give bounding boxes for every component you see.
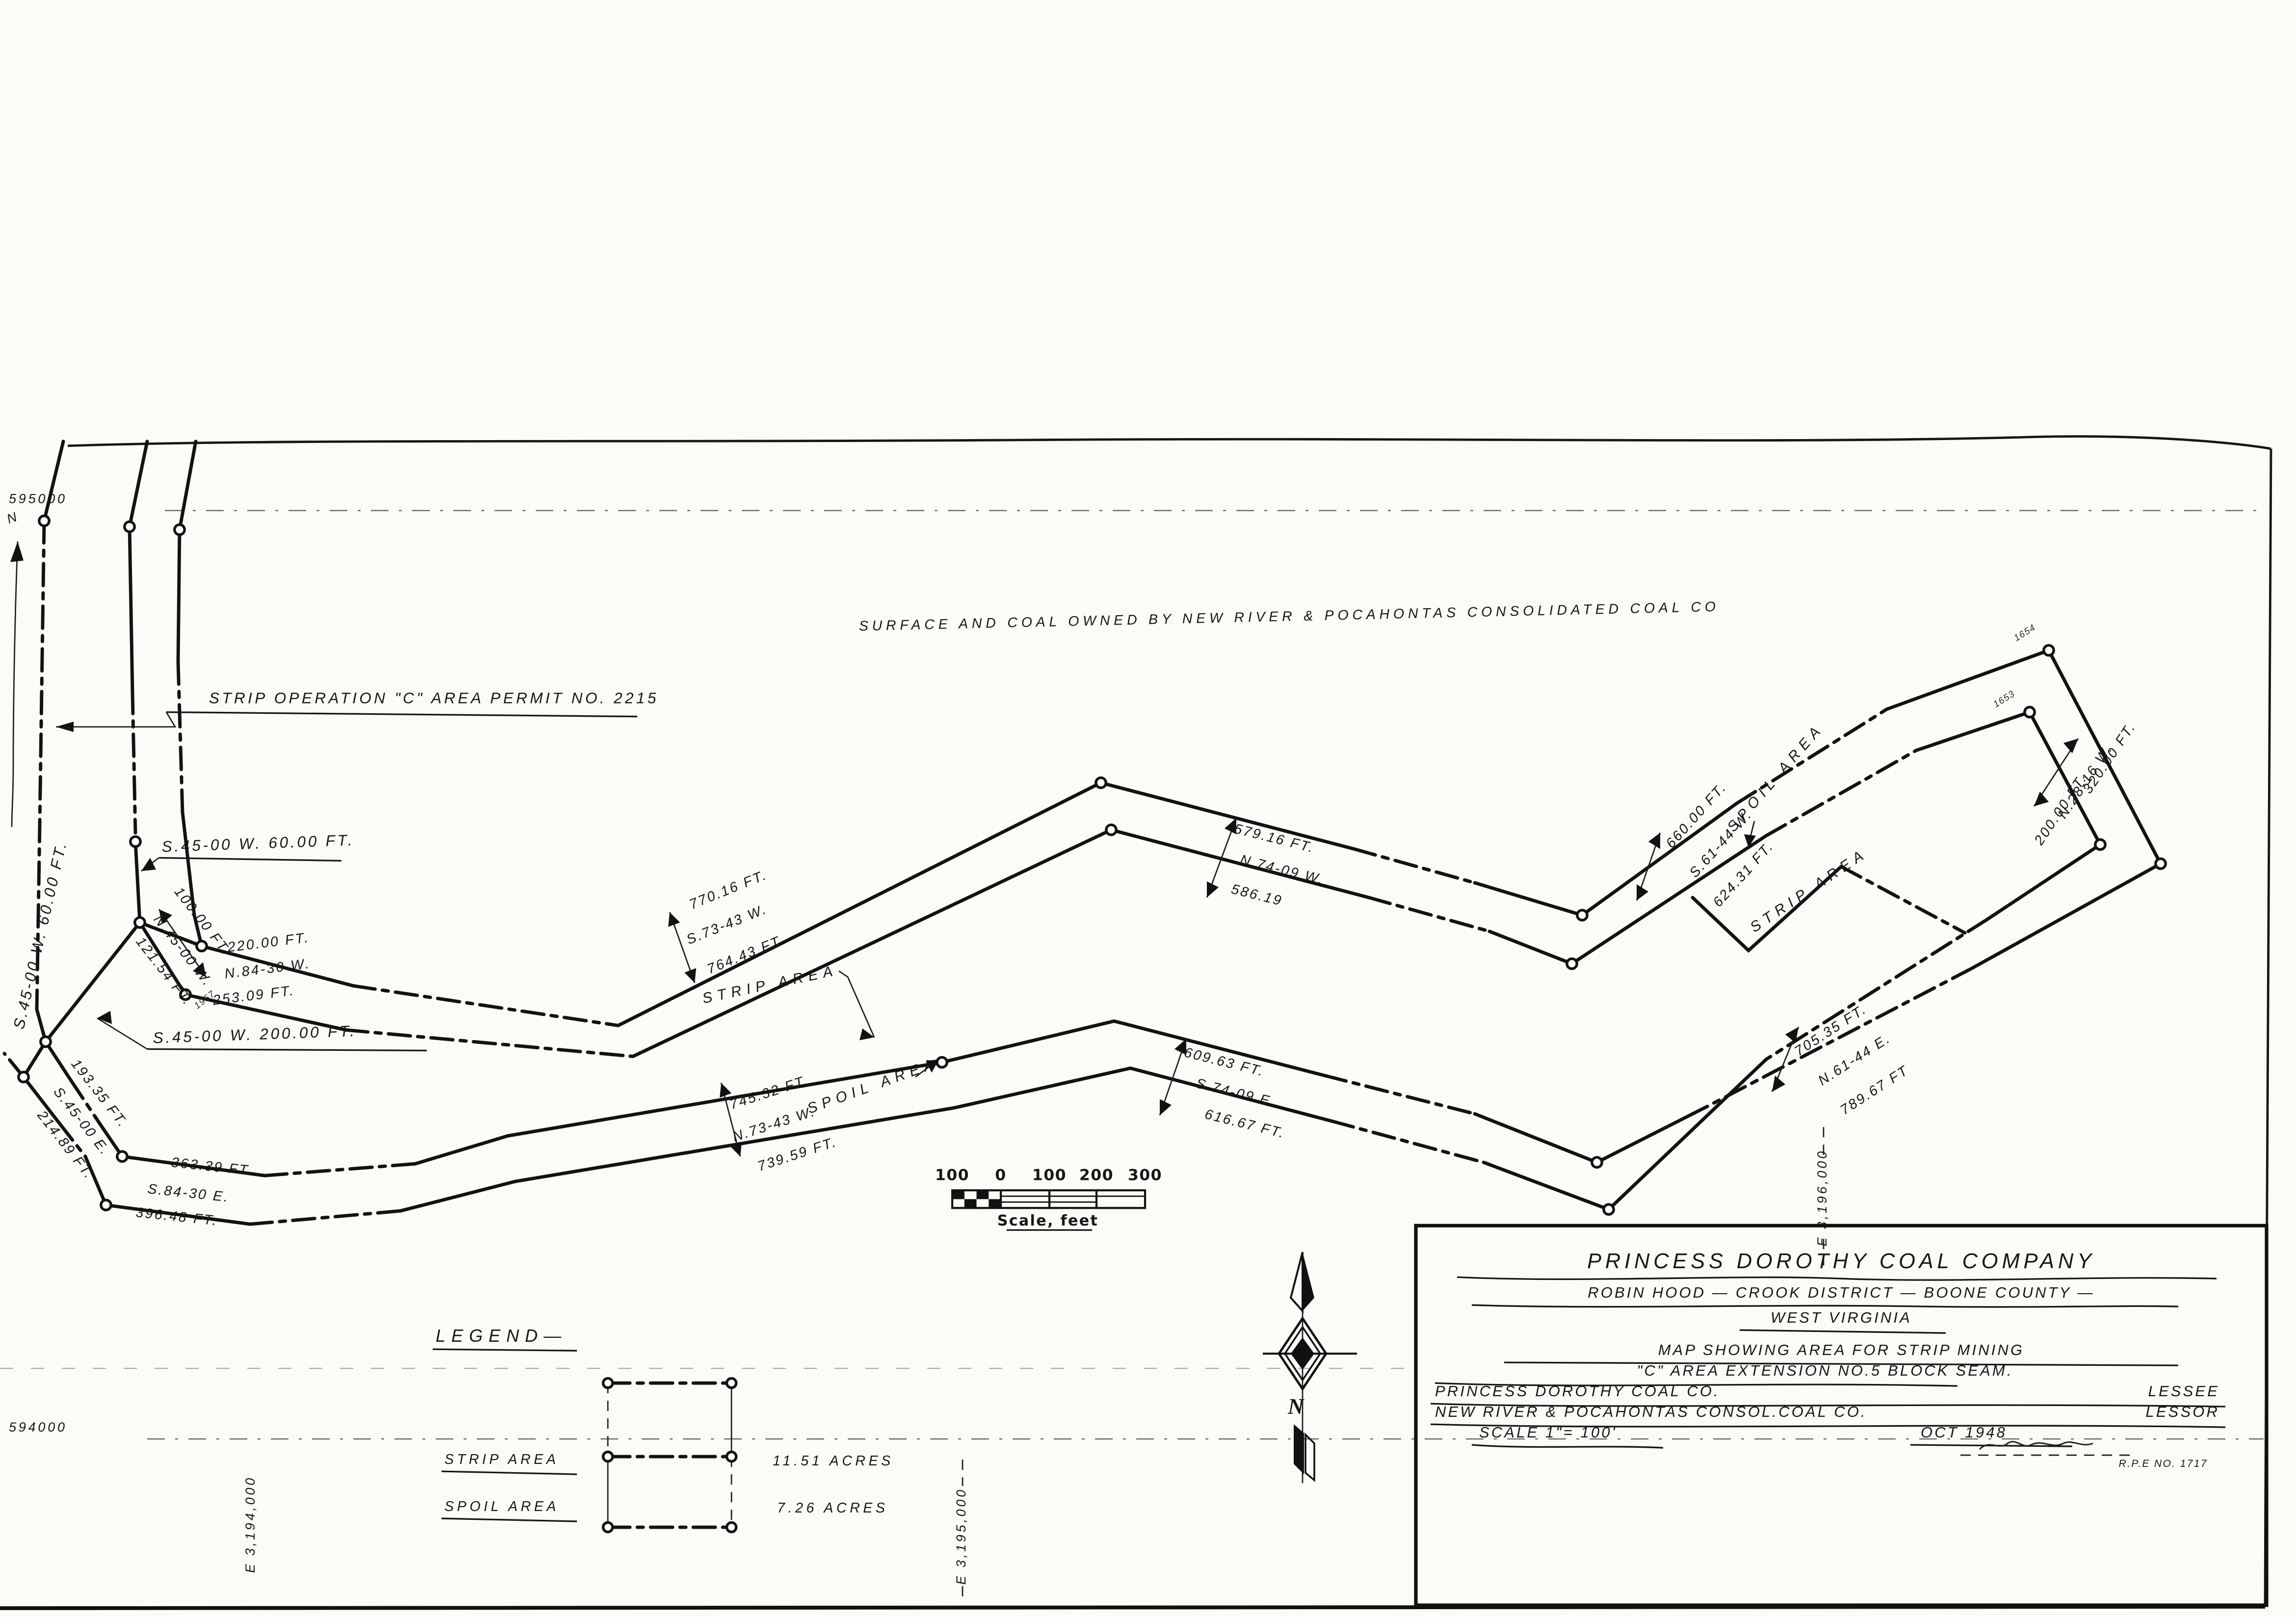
station-numbers: 1654 1653 1957 (192, 623, 2037, 1012)
title-lessee-name: PRINCESS DOROTHY COAL CO. (1435, 1382, 1720, 1400)
south1-193 (46, 1042, 71, 1080)
scale-bar: 100 0 100 200 300 Scale, feet (935, 1166, 1162, 1230)
north2-764 (633, 830, 1111, 1056)
legend-title: LEGEND— (436, 1326, 567, 1346)
grid-label-e3196000: E 3,196,000 (1815, 1149, 1829, 1246)
scale-caption: Scale, feet (997, 1212, 1099, 1229)
dist-label: 764.43 FT. (705, 932, 787, 977)
bearing-label: N.84-30 W. (224, 956, 312, 982)
title-scale: SCALE 1"= 100' (1479, 1424, 1617, 1441)
area-labels: STRIP AREA SPOIL AREA SPOIL AREA STRIP A… (701, 720, 1871, 1117)
north1-660 (1887, 651, 2049, 709)
title-lessor-name: NEW RIVER & POCAHONTAS CONSOL.COAL CO. (1435, 1403, 1867, 1420)
traverse-descent-b (130, 442, 147, 692)
legend-strip-acres: 11.51 ACRES (773, 1453, 894, 1469)
grid-label-594000: 594000 (9, 1420, 67, 1434)
grid-label-e3195000: E 3,195,000 (954, 1487, 968, 1585)
north-letter-small: N (5, 509, 19, 526)
title-subject1: MAP SHOWING AREA FOR STRIP MINING (1658, 1341, 2025, 1358)
station-label: 1653 (1992, 689, 2017, 710)
north-arrow-small: N (5, 509, 24, 827)
dist-label: 363.39 FT. (170, 1154, 254, 1178)
title-lessee-role: LESSEE (2148, 1382, 2219, 1400)
bearing-label: N.74-09 W. (1238, 852, 1326, 888)
north2-624 (1916, 712, 2030, 751)
legend-spoil-label: SPOIL AREA (444, 1499, 559, 1514)
title-lessor-role: LESSOR (2146, 1403, 2219, 1420)
traverse-descent-a (44, 442, 63, 521)
bearing-label: S.45-00 W. 60.00 FT. (161, 831, 355, 856)
dist-label: 616.67 FT. (1203, 1106, 1287, 1142)
title-block: PRINCESS DOROTHY COAL COMPANY ROBIN HOOD… (1416, 1226, 2267, 1605)
north2-586 (1489, 931, 1572, 964)
seg-200ft (46, 922, 140, 1042)
dist-label: 745.32 FT. (728, 1072, 811, 1113)
grid-label-595000: 595000 (9, 492, 67, 506)
north1-705 (1972, 863, 2161, 968)
north-arrow-large: N (1263, 1252, 1357, 1483)
north-letter-large: N (1287, 1394, 1305, 1419)
dist-label: 579.16 FT. (1232, 821, 1316, 856)
scale-tick: 0 (995, 1166, 1006, 1184)
north1-579 (1475, 883, 1582, 915)
bearing-label: S.84-30 E. (147, 1181, 230, 1205)
legend: LEGEND— STRIP AREA 11.51 ACRES SPOIL ARE… (433, 1326, 894, 1532)
traverse-descent-c (178, 442, 196, 662)
scale-tick: 300 (1128, 1166, 1162, 1184)
dist-label: 396.48 FT. (135, 1204, 219, 1228)
dist-label: 253.09 FT. (211, 983, 296, 1008)
bearing-label: S.45-00 W. 200.00 FT. (153, 1022, 357, 1046)
permit-note: STRIP OPERATION "C" AREA PERMIT NO. 2215 (56, 689, 659, 732)
dist-label: 586.19 (1229, 881, 1284, 909)
title-rpe: R.P.E NO. 1717 (2119, 1458, 2208, 1469)
scale-tick: 100 (935, 1166, 969, 1184)
legend-strip-label: STRIP AREA (444, 1452, 559, 1467)
title-company: PRINCESS DOROTHY COAL COMPANY (1587, 1250, 2095, 1273)
bearing-label: S.74-09 E. (1194, 1075, 1278, 1111)
permit-note-text: STRIP OPERATION "C" AREA PERMIT NO. 2215 (209, 689, 659, 707)
title-date: OCT 1948 (1921, 1424, 2007, 1441)
dist-label: 220.00 FT. (226, 930, 311, 955)
legend-spoil-acres: 7.26 ACRES (777, 1500, 888, 1516)
title-state: WEST VIRGINIA (1771, 1309, 1912, 1326)
scale-tick: 200 (1079, 1166, 1114, 1184)
title-district: ROBIN HOOD — CROOK DISTRICT — BOONE COUN… (1588, 1284, 2094, 1301)
dimension-brackets (159, 739, 2078, 1157)
spoil-area-label-left: SPOIL AREA (805, 1055, 940, 1117)
title-subject2: "C" AREA EXTENSION NO.5 BLOCK SEAM. (1637, 1362, 2013, 1379)
grid-label-e3194000: E 3,194,000 (243, 1476, 258, 1573)
ownership-note: SURFACE AND COAL OWNED BY NEW RIVER & PO… (859, 599, 1720, 634)
station-label: 1654 (2012, 623, 2038, 644)
spoil-area-label-right: SPOIL AREA (1724, 720, 1827, 835)
scale-tick: 100 (1032, 1166, 1067, 1184)
survey-map-sheet: 595000 594000 E 3,194,000 E 3,195,000 E … (0, 0, 2296, 1617)
